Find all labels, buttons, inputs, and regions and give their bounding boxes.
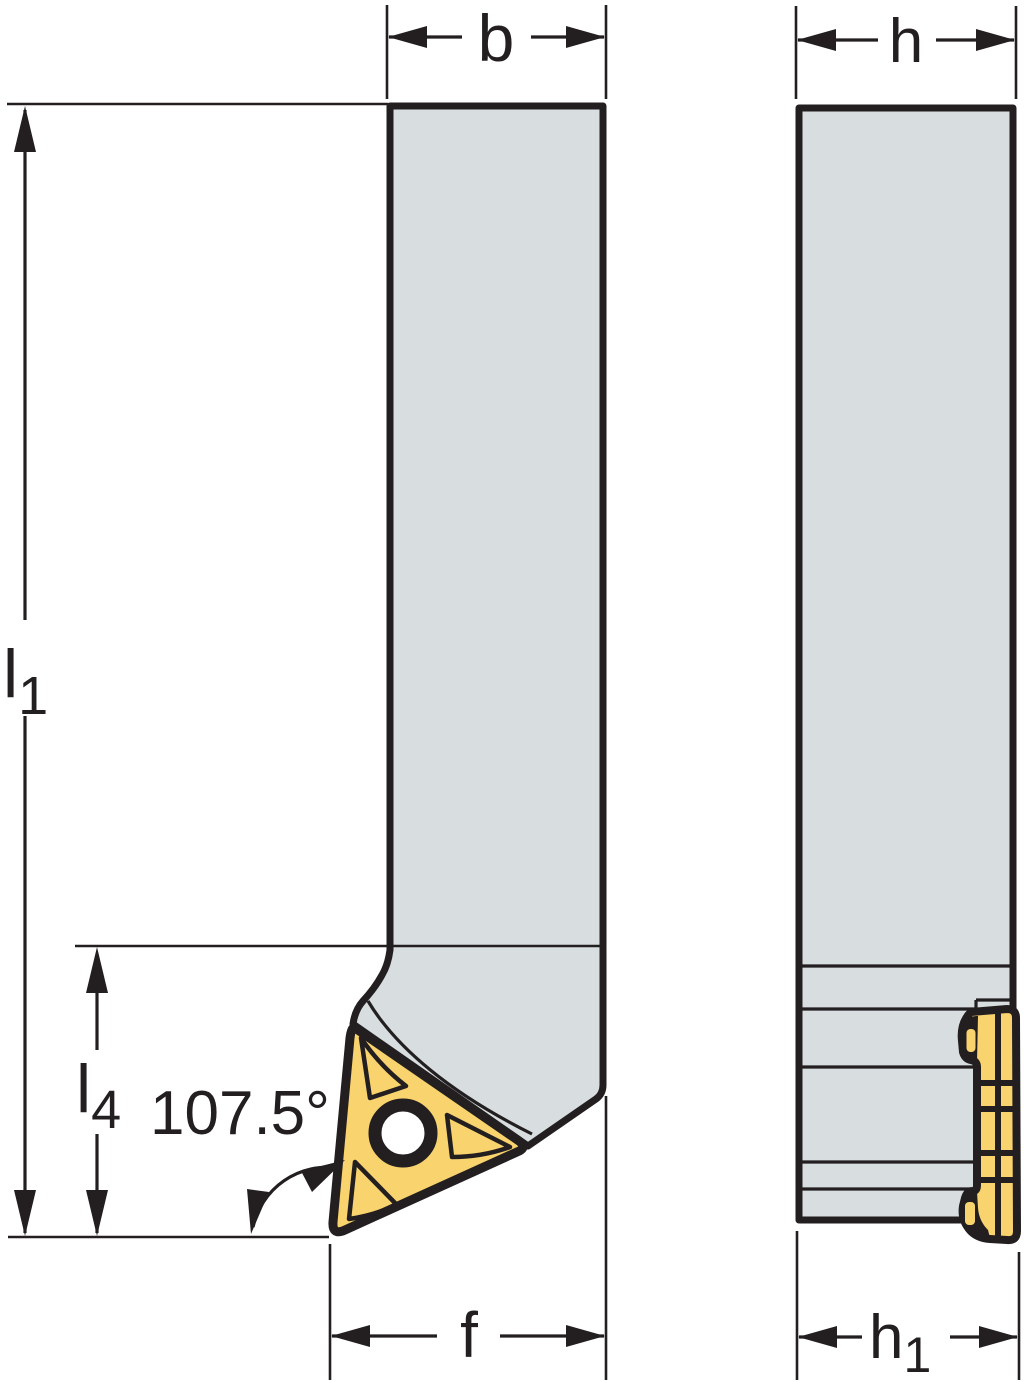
dimension-h: h	[796, 6, 1016, 99]
arrowhead-up	[14, 106, 36, 152]
drawing-svg: b h l1 l4 107.5°	[0, 0, 1024, 1382]
arrowhead-right	[976, 29, 1015, 51]
arc-arrowhead-bottom	[247, 1189, 269, 1234]
arrowhead-right	[979, 1326, 1018, 1348]
arrowhead-right	[566, 1325, 605, 1347]
arrowhead-down	[14, 1190, 36, 1236]
holder-shank-front	[353, 106, 603, 1146]
arrowhead-right	[566, 26, 605, 48]
dimension-label-b: b	[478, 1, 515, 75]
dimension-b: b	[387, 1, 606, 99]
insert-screw-hole	[375, 1105, 431, 1161]
dimension-angle: 107.5°	[150, 1079, 345, 1234]
dimension-l4: l4	[76, 947, 121, 1236]
front-view	[75, 106, 603, 1232]
arrowhead-left	[797, 29, 836, 51]
tool-holder-dimension-drawing: b h l1 l4 107.5°	[0, 0, 1024, 1382]
side-view	[799, 108, 1017, 1240]
clamp-slot-top	[967, 1029, 976, 1052]
dimension-l1: l1	[3, 104, 388, 1237]
dimension-label-f: f	[460, 1299, 478, 1371]
dimension-label-h: h	[889, 7, 923, 76]
arrowhead-down	[86, 1190, 108, 1236]
dimension-label-l1: l1	[3, 636, 48, 726]
arrowhead-left	[388, 26, 427, 48]
dimension-h1: h1	[797, 1231, 1019, 1382]
arrowhead-left	[798, 1326, 837, 1348]
arrowhead-up	[86, 947, 108, 993]
angle-label: 107.5°	[150, 1079, 330, 1148]
dimension-label-l4: l4	[76, 1051, 121, 1140]
dimension-label-h1: h1	[869, 1303, 931, 1382]
clamp-slot-bottom	[965, 1202, 975, 1225]
arrowhead-left	[331, 1325, 370, 1347]
